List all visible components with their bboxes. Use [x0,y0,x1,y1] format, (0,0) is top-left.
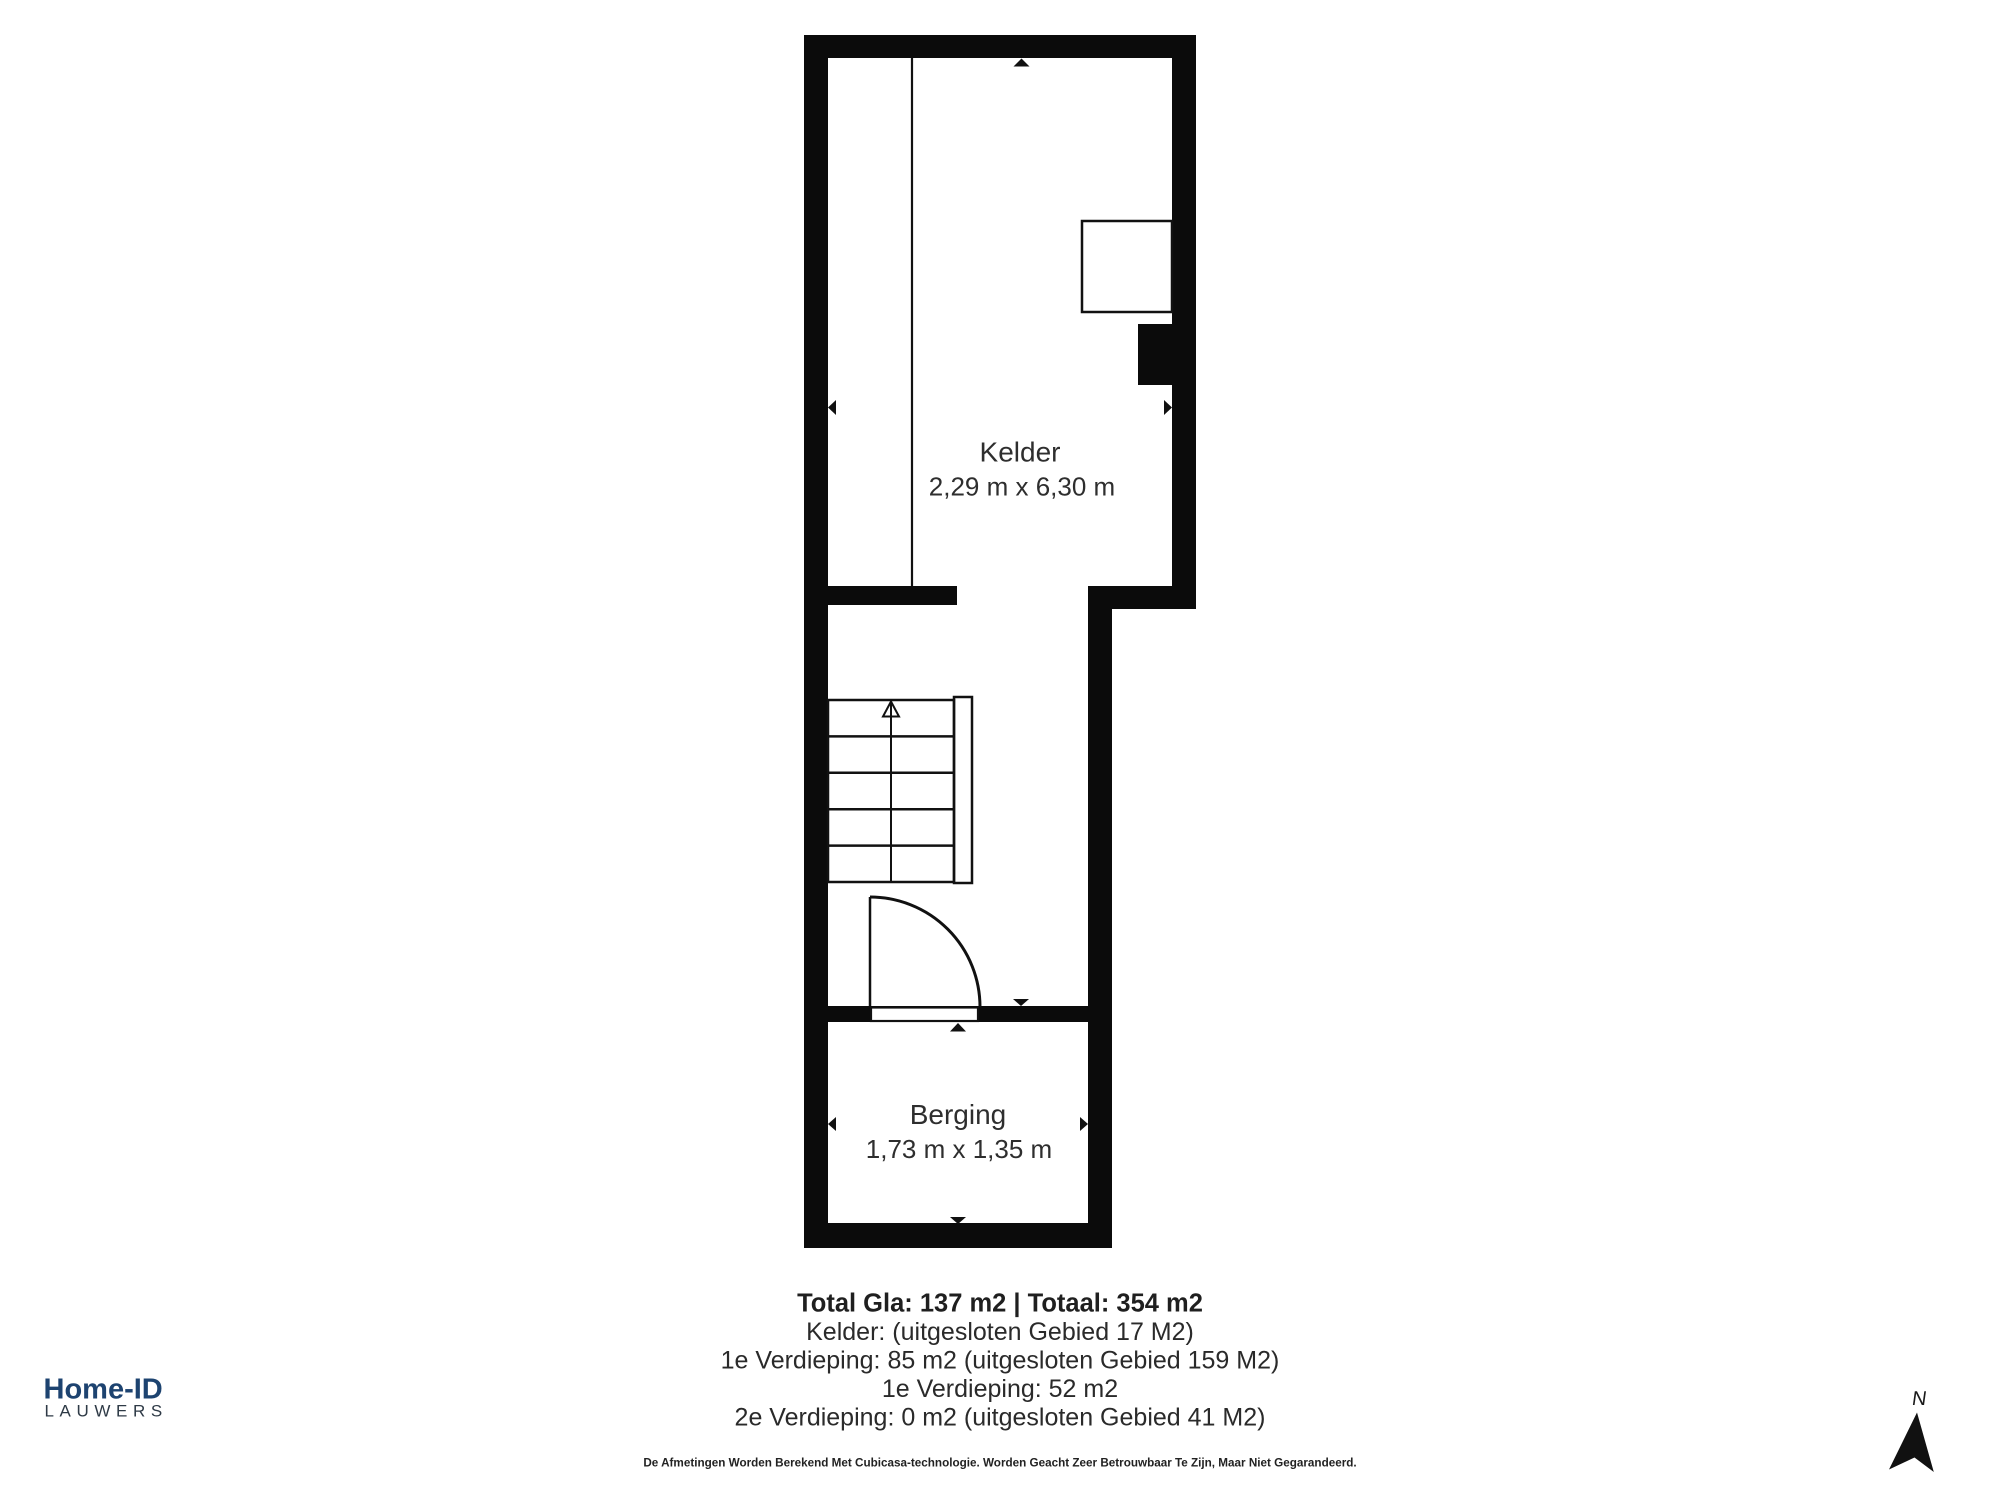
svg-text:1e Verdieping: 52 m2: 1e Verdieping: 52 m2 [882,1375,1118,1403]
svg-text:De Afmetingen Worden Berekend: De Afmetingen Worden Berekend Met Cubica… [643,1457,1356,1470]
svg-text:Kelder: (uitgesloten Gebied 17: Kelder: (uitgesloten Gebied 17 M2) [806,1318,1194,1346]
svg-text:2,29 m x 6,30 m: 2,29 m x 6,30 m [929,472,1115,502]
svg-text:1e Verdieping: 85 m2 (uitgeslo: 1e Verdieping: 85 m2 (uitgesloten Gebied… [721,1347,1280,1375]
svg-text:2e Verdieping: 0 m2 (uitgeslot: 2e Verdieping: 0 m2 (uitgesloten Gebied … [735,1404,1266,1432]
svg-text:1,73 m x 1,35 m: 1,73 m x 1,35 m [866,1134,1052,1164]
svg-text:N: N [1911,1388,1929,1410]
svg-text:Berging: Berging [910,1099,1007,1130]
svg-text:Total Gla: 137 m2 | Totaal: 35: Total Gla: 137 m2 | Totaal: 354 m2 [797,1290,1203,1318]
svg-text:LAUWERS: LAUWERS [45,1402,168,1421]
svg-text:Kelder: Kelder [980,437,1061,468]
